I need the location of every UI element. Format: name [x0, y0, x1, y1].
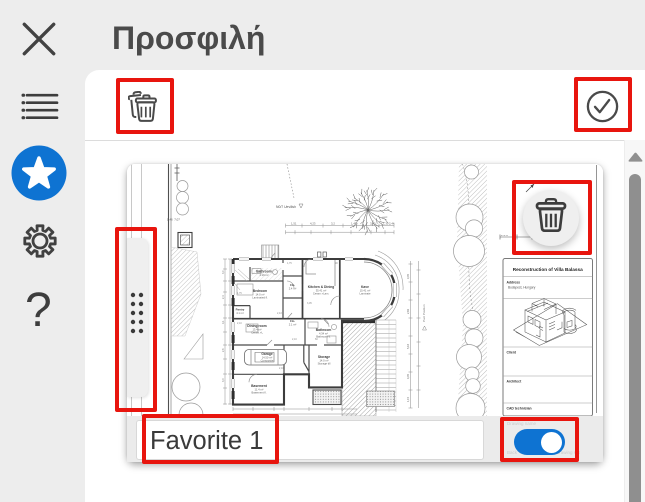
svg-text:Basement: Basement	[251, 384, 268, 388]
svg-text:3,2: 3,2	[331, 221, 335, 225]
svg-text:4,23: 4,23	[310, 221, 316, 225]
svg-text:2,10: 2,10	[279, 367, 284, 370]
svg-text:2,10: 2,10	[237, 322, 242, 325]
svg-text:4.1 m²: 4.1 m²	[236, 311, 244, 315]
svg-text:Storage: Storage	[318, 355, 330, 359]
svg-text:2,4: 2,4	[222, 295, 225, 299]
svg-text:2,43: 2,43	[277, 312, 282, 315]
svg-text:Pool Position: Pool Position	[422, 304, 426, 322]
svg-text:3,05: 3,05	[406, 273, 410, 279]
svg-text:Bathroom: Bathroom	[256, 270, 272, 274]
svg-text:Garage: Garage	[261, 352, 273, 356]
svg-text:Address: Address	[507, 281, 521, 285]
svg-text:3,05: 3,05	[307, 302, 312, 305]
svg-text:Reconstruction of Villa Balass: Reconstruction of Villa Balassa	[513, 267, 583, 272]
svg-text:Storage till: Storage till	[318, 362, 331, 366]
svg-text:Laminate: Laminate	[359, 292, 371, 296]
svg-text:1,15: 1,15	[406, 396, 410, 402]
svg-text:N0/7 Uevilish: N0/7 Uevilish	[276, 205, 296, 209]
svg-text:1,75: 1,75	[287, 262, 292, 265]
svg-text:2,82: 2,82	[406, 308, 410, 314]
svg-text:Kave: Kave	[361, 285, 369, 289]
svg-text:4,1: 4,1	[222, 320, 225, 324]
svg-text:Basement fl.: Basement fl.	[252, 391, 267, 395]
svg-text:Architect: Architect	[507, 380, 523, 384]
svg-text:2,44: 2,44	[389, 221, 395, 225]
svg-text:2,6: 2,6	[222, 348, 225, 352]
svg-text:Composite: Composite	[261, 359, 274, 363]
svg-text:3,40: 3,40	[370, 221, 376, 225]
svg-text:2.4 m²: 2.4 m²	[289, 287, 297, 291]
svg-text:1,30: 1,30	[383, 221, 389, 225]
svg-text:Kitchen & Dining: Kitchen & Dining	[308, 285, 335, 289]
svg-text:Client: Client	[507, 351, 517, 355]
svg-text:5,16: 5,16	[406, 343, 410, 349]
svg-text:3,3: 3,3	[222, 378, 225, 382]
svg-text:1,46 7,07: 1,46 7,07	[167, 218, 180, 222]
svg-text:Dining room: Dining room	[247, 324, 266, 328]
svg-text:Clo.: Clo.	[290, 283, 296, 287]
svg-text:CAD technician: CAD technician	[507, 407, 532, 411]
svg-text:Bathroom tl.: Bathroom tl.	[316, 335, 331, 339]
svg-text:3,0: 3,0	[222, 270, 225, 274]
svg-text:1,75: 1,75	[237, 292, 242, 295]
svg-text:4.19 m²: 4.19 m²	[259, 273, 268, 277]
svg-text:Bathroom: Bathroom	[316, 328, 332, 332]
svg-text:Clo.: Clo.	[290, 319, 296, 323]
svg-text:4,05: 4,05	[406, 373, 410, 379]
svg-text:Ceram.+Lam.: Ceram.+Lam.	[313, 292, 330, 296]
svg-text:Ceram.+L: Ceram.+L	[251, 331, 263, 335]
svg-text:Laminated fl.: Laminated fl.	[252, 296, 268, 300]
svg-text:2,10: 2,10	[292, 338, 297, 341]
svg-text:Budapest, Hungary: Budapest, Hungary	[508, 286, 536, 290]
svg-text:Pantry: Pantry	[236, 308, 245, 312]
svg-text:Bedroom: Bedroom	[253, 289, 268, 293]
svg-text:1,43: 1,43	[351, 221, 357, 225]
svg-text:2.1 m²: 2.1 m²	[289, 323, 297, 327]
svg-text:1,51: 1,51	[291, 221, 297, 225]
